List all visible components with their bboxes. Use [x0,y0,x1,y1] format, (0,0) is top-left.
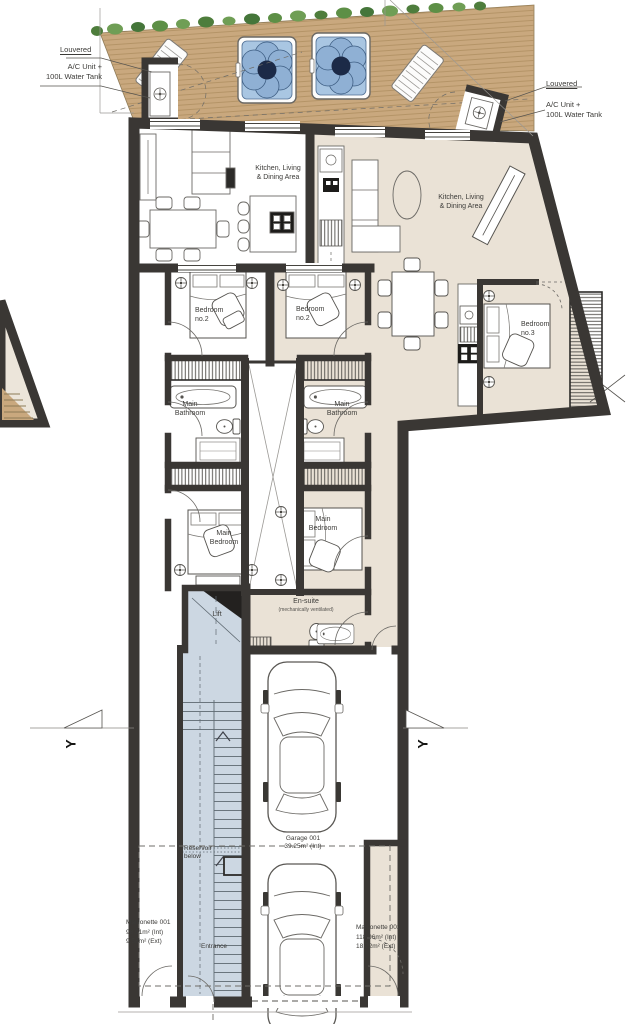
room-label-kitchen-unit1: Kitchen, Living & Dining Area [255,165,301,182]
louvered-ac-enclosure-left [142,60,178,122]
room-label-main-bedroom-unit1: Main Bedroom [210,530,238,547]
floor-plan-drawing [0,0,640,1024]
room-label-main-bedroom-unit2: Main Bedroom [309,516,337,533]
hot-tub-right-icon [310,33,370,99]
car-icon-1 [261,662,343,832]
room-label-ensuite: En-suite [293,598,319,607]
room-label-bedroom2-unit1: Bedroom no.2 [195,307,223,324]
room-label-garage: Garage 001 39.25m² (Int) [284,835,321,851]
label-ac-unit-right-line2: 100L Water Tank [546,110,602,120]
room-label-main-bathroom-unit1: Main Bathroom [175,401,205,418]
label-reservoir-below: Reservoir below [184,845,212,861]
room-label-kitchen-unit2: Kitchen, Living & Dining Area [438,194,484,211]
floor-plan-page: Louvered A/C Unit + 100L Water Tank Louv… [0,0,640,1024]
unit1-kitchen-living-furniture [137,130,296,261]
unit2-kitchen-counter [318,146,344,280]
label-louvered-left: Louvered [60,45,91,55]
label-ac-unit-right: A/C Unit + 100L Water Tank [546,100,602,119]
unit1-bathroom-fixtures [170,386,240,464]
label-ac-unit-right-line1: A/C Unit + [546,100,602,110]
label-ac-unit-left-line1: A/C Unit + [24,62,102,72]
label-ac-unit-left: A/C Unit + 100L Water Tank [24,62,102,81]
label-maisonette-002: Maisonette 002 118.96m² (Int) 18.72m² (E… [356,923,400,952]
room-label-bedroom3: Bedroom no.3 [521,321,549,338]
unit2-kitchen-run [458,284,480,406]
light-well-shaft [247,363,299,591]
room-label-bedroom2-unit2: Bedroom no.2 [296,306,324,323]
section-marker-y-right: Y [415,739,431,748]
room-label-lift: Lift [212,611,221,620]
reservoir-hatch [224,857,244,875]
label-maisonette-001: Maisonette 001 98.91m² (Int) 9.58m² (Ext… [126,918,170,947]
room-label-ensuite-note: (mechanically ventilated) [278,607,333,613]
room-label-main-bathroom-unit2: Main Bathroom [327,401,357,418]
neighbour-building-fragment [1,301,44,423]
label-ac-unit-left-line2: 100L Water Tank [24,72,102,82]
section-marker-y-left: Y [63,739,79,748]
room-label-entrance: Entrance [201,943,227,951]
label-louvered-right: Louvered [546,79,577,89]
